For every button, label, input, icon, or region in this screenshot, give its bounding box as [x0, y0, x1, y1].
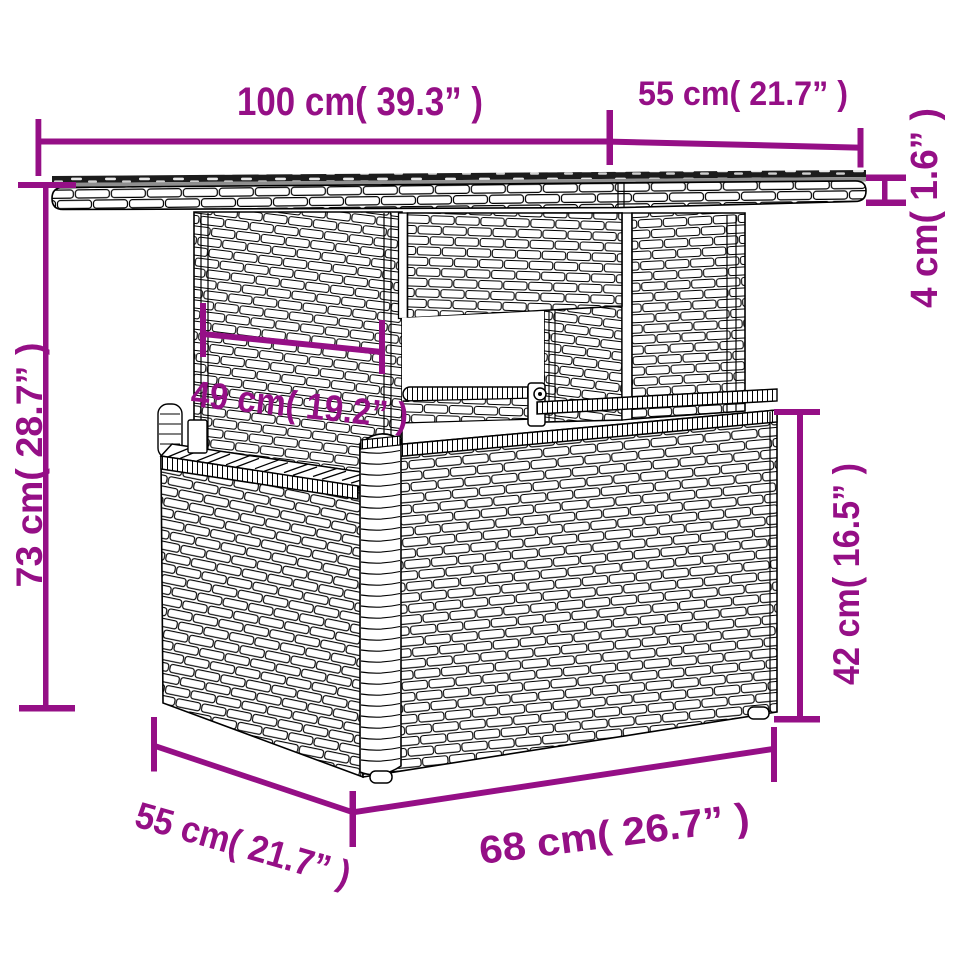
svg-text:100 cm( 39.3” ): 100 cm( 39.3” ): [237, 80, 483, 124]
svg-text:55 cm( 21.7” ): 55 cm( 21.7” ): [638, 75, 848, 113]
svg-text:42 cm( 16.5” ): 42 cm( 16.5” ): [826, 463, 867, 685]
svg-text:4 cm( 1.6” ): 4 cm( 1.6” ): [904, 108, 946, 308]
svg-text:73 cm( 28.7” ): 73 cm( 28.7” ): [9, 343, 50, 588]
